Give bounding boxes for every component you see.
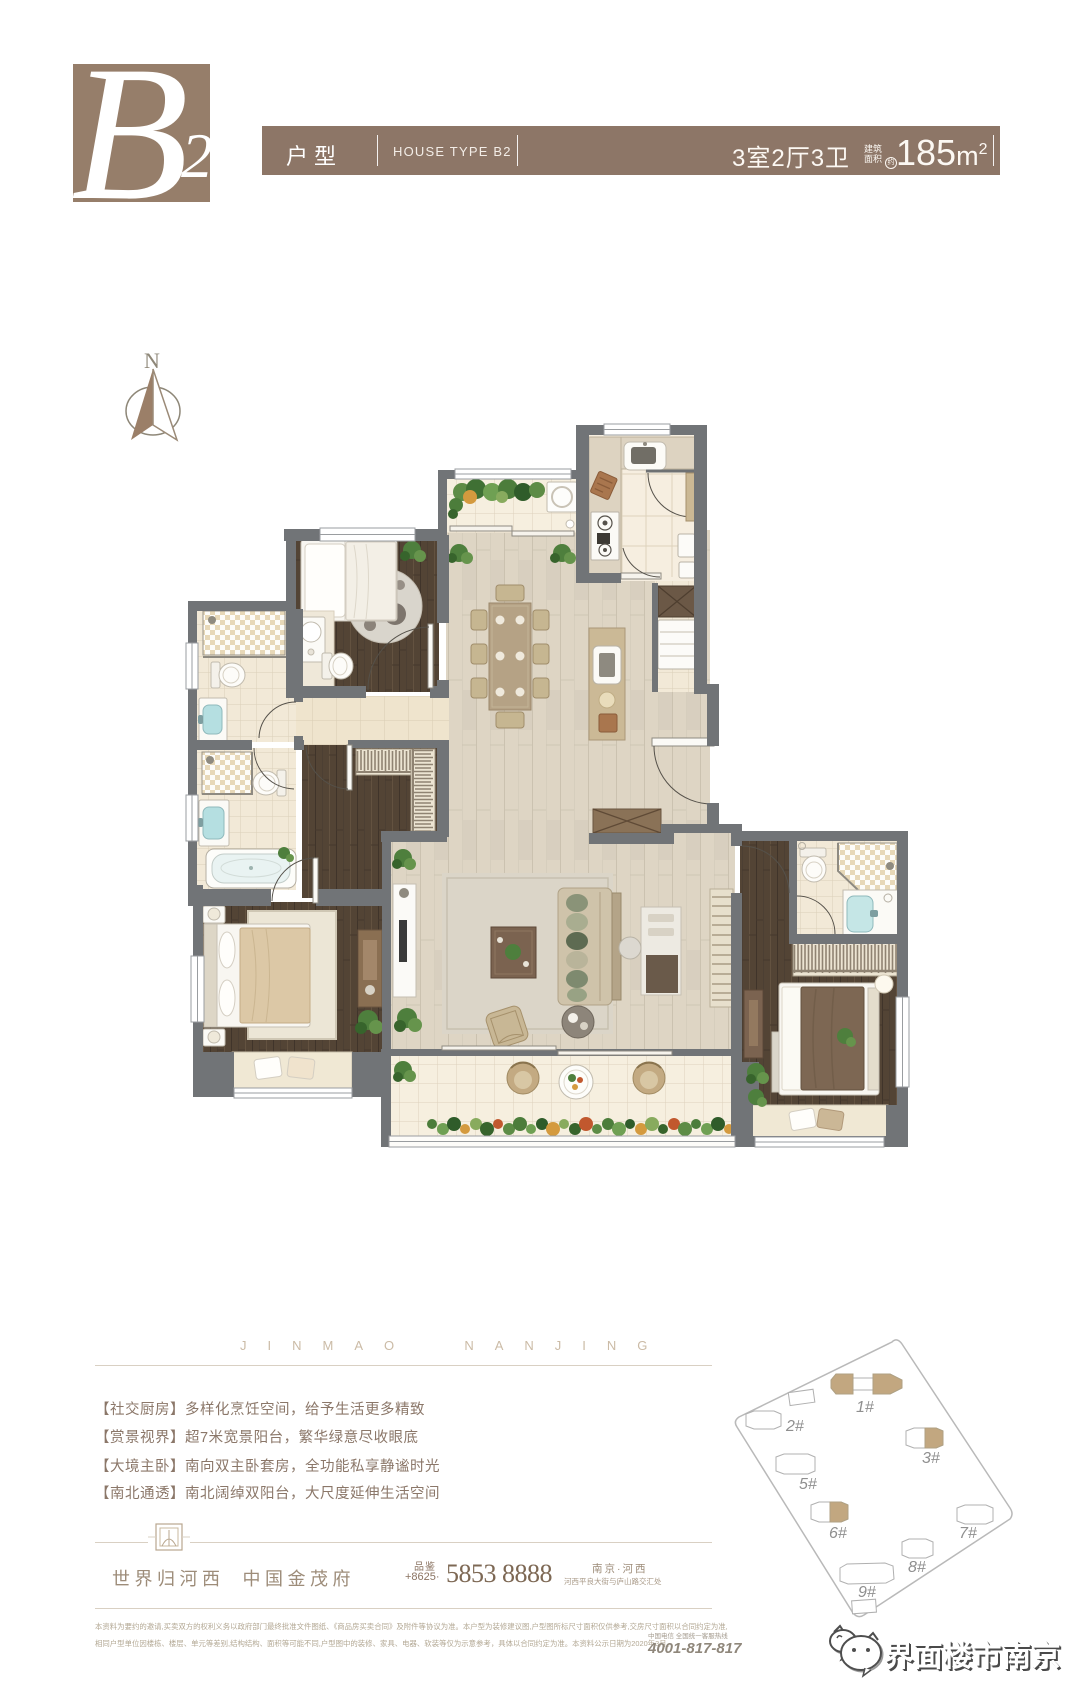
svg-text:相同户型单位因楼栋、楼层、单元等差别,结构结构、面积等可能不: 相同户型单位因楼栋、楼层、单元等差别,结构结构、面积等可能不同,户型图中的装修、… — [95, 1639, 674, 1648]
svg-text:河西平良大街与庐山路交汇处: 河西平良大街与庐山路交汇处 — [564, 1576, 662, 1586]
svg-text:南京·河西: 南京·河西 — [592, 1562, 648, 1575]
svg-text:本资料为要约的邀请,买卖双方的权利义务以政府部门最终批准文件: 本资料为要约的邀请,买卖双方的权利义务以政府部门最终批准文件图纸、《商品房买卖合… — [95, 1622, 728, 1631]
svg-text:中国电信 全国统一客服热线: 中国电信 全国统一客服热线 — [648, 1631, 728, 1640]
